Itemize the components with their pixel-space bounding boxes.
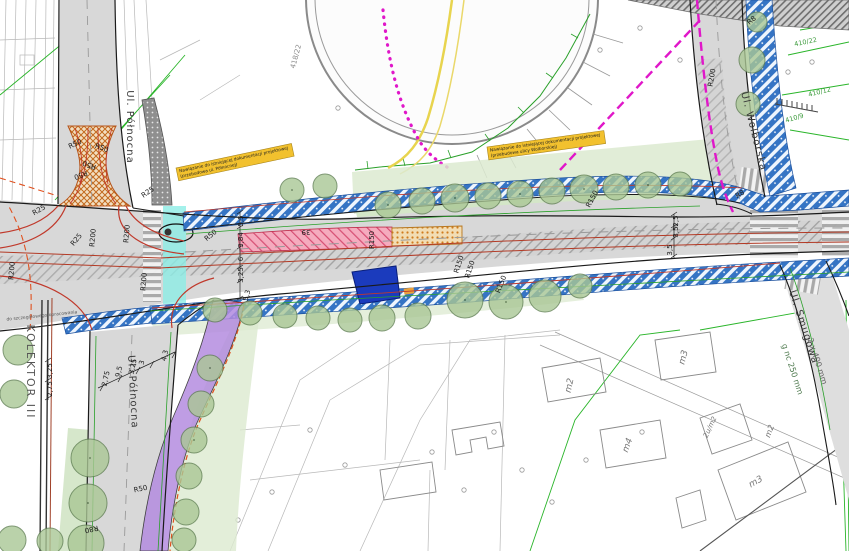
dimension-label: 6 [237,256,245,261]
dimension-label: 2,5 [672,215,680,226]
radius-label: R200 [88,228,98,247]
street-label: KOLEKTOR III [24,325,37,420]
radius-label: R150 [368,231,376,249]
dimension-label: 39 [302,228,311,236]
crossing-marker-dot [165,229,172,236]
street-label: Ul. Północna [124,90,136,164]
dimension-label: 5,5 [237,215,245,226]
radius-label: R200 [139,272,149,291]
bike-crossing-cyan [163,206,186,304]
zebra-crossing-east [750,206,798,258]
radius-label: R200 [7,261,17,280]
site-plan-drawing: Ul. PółnocnaUl. PółnocnaUl. WolborskaUl.… [0,0,849,551]
median-island [392,226,462,246]
dimension-label: 3,25 [46,363,54,379]
site-plan-screenshot: Ul. PółnocnaUl. PółnocnaUl. WolborskaUl.… [0,0,849,551]
radius-label: R200 [122,224,132,243]
dimension-label: 3,5 [672,226,680,237]
dimension-label: 3,25 [237,267,245,283]
dimension-label: 3,5 [666,244,674,255]
dimension-label: 3,84 [237,232,245,248]
dimension-label: 2,75 [46,381,54,397]
